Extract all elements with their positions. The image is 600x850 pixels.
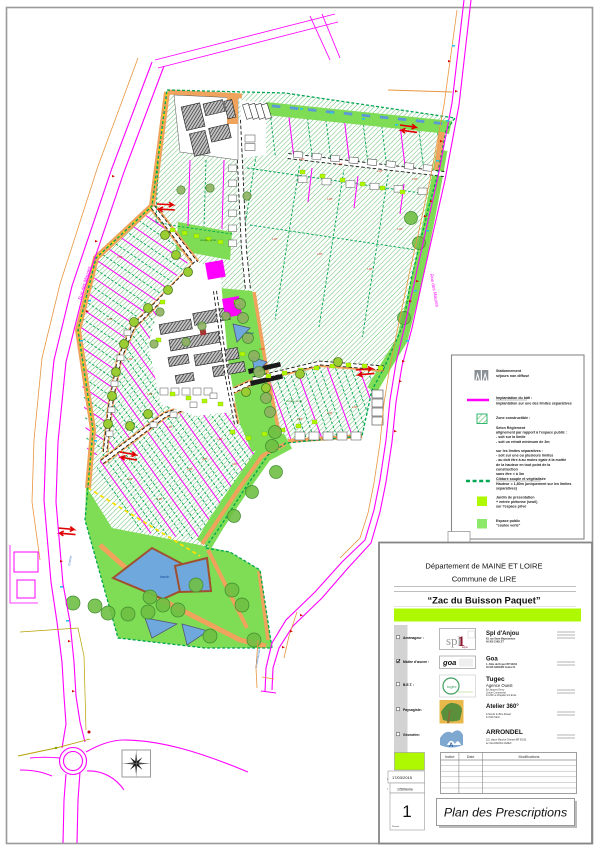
svg-text:séjours non diffusé: séjours non diffusé — [496, 374, 529, 378]
svg-text:bassin: bassin — [160, 575, 169, 579]
svg-text:Modifications: Modifications — [519, 755, 540, 759]
svg-text:"coulée verte": "coulée verte" — [496, 524, 521, 528]
svg-text:LOT: LOT — [337, 162, 343, 166]
svg-text:alignement par rapport à l'esp: alignement par rapport à l'espace public… — [496, 431, 567, 435]
svg-text:LOT: LOT — [397, 227, 403, 231]
svg-text:LOT: LOT — [327, 411, 333, 415]
svg-text:122, placer Maurice Géresse BP: 122, placer Maurice Géresse BP 90132 — [486, 739, 527, 742]
svg-text:anjou: anjou — [462, 646, 469, 649]
svg-text:Centre Commercial: Centre Commercial — [486, 691, 506, 694]
svg-text:“Zac du Buisson Paquet”: “Zac du Buisson Paquet” — [427, 595, 540, 606]
svg-text:av. Ma ANGRAS CEDEX: av. Ma ANGRAS CEDEX — [486, 742, 512, 745]
svg-text:Indice: Indice — [445, 755, 455, 759]
svg-text:Paysagiste:: Paysagiste: — [403, 708, 422, 712]
svg-text:sans être < à 3m: sans être < à 3m — [496, 472, 524, 476]
svg-text:LOT: LOT — [202, 457, 208, 461]
svg-text:LOT: LOT — [147, 392, 153, 396]
svg-text:LOT: LOT — [327, 197, 333, 201]
svg-text:Géomètre:: Géomètre: — [403, 733, 420, 737]
svg-text:le Moulin du Brie Ricaud: le Moulin du Brie Ricaud — [486, 713, 512, 716]
svg-text:Clôture souple et végétalisée: Clôture souple et végétalisée — [496, 477, 546, 481]
svg-text:49 026 ANGERS Cedex 01: 49 026 ANGERS Cedex 01 — [486, 666, 516, 669]
svg-text:Maître d'œuvre :: Maître d'œuvre : — [403, 660, 429, 664]
svg-text:Date: Date — [467, 755, 475, 759]
svg-text:LOT: LOT — [157, 497, 163, 501]
svg-text:implantation sur une des limit: implantation sur une des limites séparat… — [496, 402, 572, 406]
svg-text:1/500ème: 1/500ème — [397, 788, 413, 792]
svg-text:Commune de LIRE: Commune de LIRE — [452, 575, 517, 584]
svg-text:- soit sur une ou plusieu: - soit sur une ou plusieurs limites — [496, 454, 553, 458]
svg-text:LOT: LOT — [187, 467, 193, 471]
svg-text:sur l'espace privé: sur l'espace privé — [496, 505, 526, 509]
svg-text:Tugec: Tugec — [486, 676, 505, 683]
svg-text:LOT: LOT — [217, 437, 223, 441]
svg-text:1: 1 — [402, 802, 411, 821]
svg-text:de la hauteur en tout point de: de la hauteur en tout point de la — [496, 463, 551, 467]
svg-text:Planche: Planche — [392, 826, 400, 828]
svg-text:- au doit être à au moins: - au doit être à au moins égale à la moi… — [496, 458, 566, 462]
svg-text:ARRONDEL: ARRONDEL — [486, 729, 523, 736]
svg-text:Zone constructible :: Zone constructible : — [496, 416, 530, 420]
svg-text:Goa: Goa — [486, 657, 498, 663]
svg-text:Département de MAINE ET LOIRE: Département de MAINE ET LOIRE — [425, 562, 542, 571]
svg-text:LOT: LOT — [412, 177, 418, 181]
svg-text:Espace public: Espace public — [496, 519, 520, 523]
svg-text:Hauteur = 1,80m (uniquement su: Hauteur = 1,80m (uniquement sur les limi… — [496, 482, 571, 486]
svg-text:LOT: LOT — [377, 169, 383, 173]
svg-text:8d Jacques Demy: 8d Jacques Demy — [486, 690, 505, 692]
svg-text:LOT: LOT — [127, 477, 133, 481]
svg-text:Agence Ouest: Agence Ouest — [486, 683, 513, 688]
svg-text:Selon Règlement: Selon Règlement — [496, 426, 526, 430]
svg-text:LOT: LOT — [117, 255, 123, 259]
svg-text:Jardin de présentation: Jardin de présentation — [496, 496, 535, 500]
svg-text:Atelier 360°: Atelier 360° — [486, 704, 519, 710]
svg-text:bassin: bassin — [246, 331, 255, 335]
svg-text:LOT: LOT — [167, 425, 173, 429]
svg-text:coulée verte: coulée verte — [200, 238, 217, 242]
svg-text:tugec: tugec — [447, 684, 457, 689]
svg-text:LOT: LOT — [272, 237, 278, 241]
svg-text:44 810 Hablo: 44 810 Hablo — [486, 717, 500, 719]
svg-text:Plan des Prescriptions: Plan des Prescriptions — [444, 806, 567, 820]
svg-text:+ entrée piétonne (seuil): + entrée piétonne (seuil) — [496, 500, 538, 504]
svg-text:LOT: LOT — [232, 462, 238, 466]
svg-text:construction: construction — [496, 467, 518, 471]
svg-text:Spl d'Anjou: Spl d'Anjou — [486, 631, 519, 637]
svg-text:LOT: LOT — [352, 405, 358, 409]
svg-text:- soit sur la limite: - soit sur la limite — [496, 435, 526, 439]
svg-text:séparatives): séparatives) — [496, 486, 518, 490]
svg-text:Stationnement: Stationnement — [496, 369, 522, 373]
svg-text:44 240 La Chapelle Sur Erdre: 44 240 La Chapelle Sur Erdre — [486, 694, 517, 697]
svg-text:goa: goa — [442, 658, 456, 667]
svg-text:49 300 CHOLET: 49 300 CHOLET — [486, 641, 504, 644]
svg-text:LOT: LOT — [297, 417, 303, 421]
svg-text:A: A — [449, 743, 454, 749]
svg-text:LOT: LOT — [317, 252, 323, 256]
svg-text:Implantation du bâti :: Implantation du bâti : — [496, 396, 532, 400]
svg-text:Aménageur :: Aménageur : — [403, 636, 424, 640]
svg-text:LOT: LOT — [367, 267, 373, 271]
svg-text:LOT: LOT — [299, 157, 305, 161]
svg-text:sur les limites séparatives :: sur les limites séparatives : — [496, 449, 543, 453]
svg-text:B.E.T. :: B.E.T. : — [403, 683, 414, 687]
svg-text:LOT: LOT — [259, 347, 265, 351]
svg-text:coulée verte: coulée verte — [286, 399, 303, 403]
svg-text:17/03/2015: 17/03/2015 — [392, 775, 413, 780]
svg-text:LOT: LOT — [107, 317, 113, 321]
svg-text:LOT: LOT — [127, 357, 133, 361]
svg-text:- soit un retrait minimum: - soit un retrait minimum de 3m — [496, 440, 550, 444]
